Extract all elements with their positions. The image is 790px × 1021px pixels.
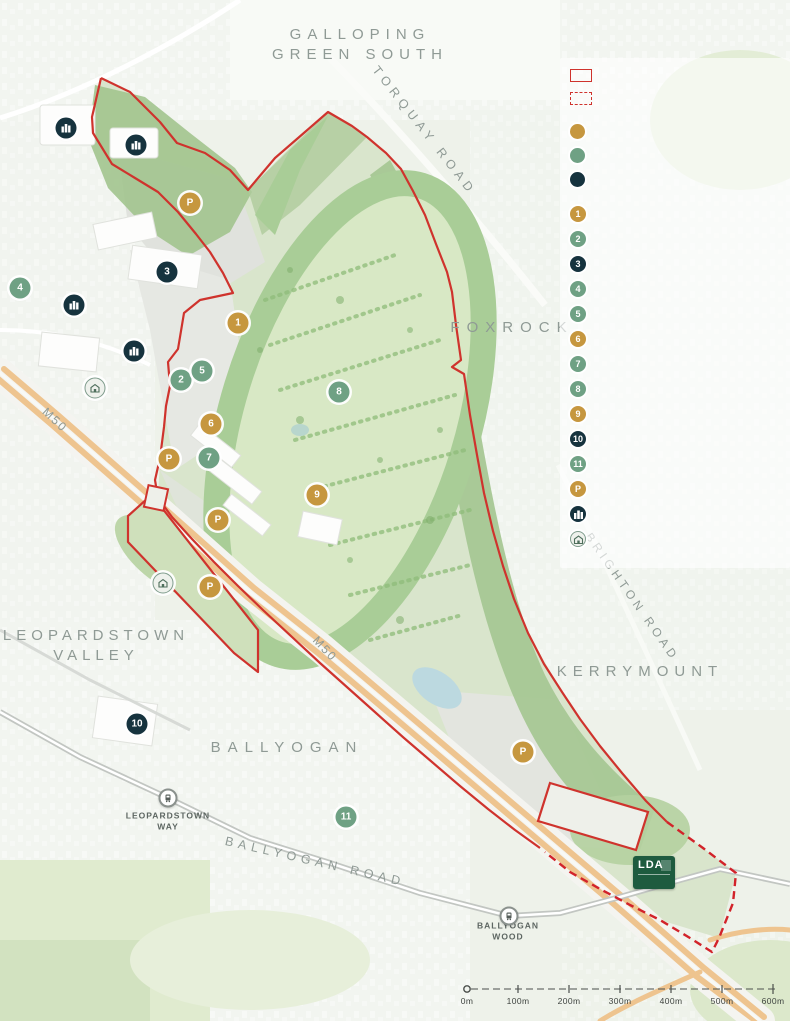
category-color-chip	[570, 148, 585, 163]
legend-item-number: 4	[570, 281, 586, 297]
legend-item-row-11: 11	[570, 456, 782, 472]
school-marker	[153, 573, 174, 594]
scale-bar-line	[462, 982, 780, 996]
legend-item-row-10: 10	[570, 431, 782, 447]
map-marker-9: 9	[307, 485, 328, 506]
legend-item-number: 3	[570, 256, 586, 272]
legend-item-number: 8	[570, 381, 586, 397]
offices-marker	[56, 118, 77, 139]
legend-extras-list: P	[570, 481, 782, 547]
parking-icon: P	[570, 481, 586, 497]
map-label-foxrock: FOXROCK	[450, 318, 573, 338]
lda-logo-subtext	[638, 874, 670, 881]
map-marker-10: 10	[127, 714, 148, 735]
boundary-swatch-dashed	[570, 92, 592, 105]
parking-marker: P	[159, 449, 180, 470]
map-marker-7: 7	[199, 448, 220, 469]
category-color-chip	[570, 124, 585, 139]
legend-extra-row-offices	[570, 506, 782, 522]
scale-label-0m: 0m	[461, 996, 474, 1006]
legend-item-row-9: 9	[570, 406, 782, 422]
parking-marker: P	[180, 193, 201, 214]
map-marker-3: 3	[157, 262, 178, 283]
legend-boundary-row	[570, 68, 782, 82]
legend-boundary-row	[570, 91, 782, 105]
category-color-chip	[570, 172, 585, 187]
legend-categories-list	[570, 124, 782, 187]
legend-item-number: 2	[570, 231, 586, 247]
legend-item-number: 6	[570, 331, 586, 347]
map-marker-5: 5	[192, 361, 213, 382]
legend-boundaries-list	[570, 68, 782, 105]
legend-numbered-list: 1 2 3 4 5 6 7 8 9	[570, 206, 782, 472]
offices-marker	[126, 135, 147, 156]
legend-item-row-8: 8	[570, 381, 782, 397]
map-marker-6: 6	[201, 414, 222, 435]
scale-label-400m: 400m	[660, 996, 683, 1006]
legend-item-row-1: 1	[570, 206, 782, 222]
legend-item-number: 11	[570, 456, 586, 472]
legend-item-number: 5	[570, 306, 586, 322]
legend-item-number: 10	[570, 431, 586, 447]
scale-label-600m: 600m	[762, 996, 785, 1006]
map-label-galloping-green-south: GALLOPING GREEN SOUTH	[272, 25, 448, 66]
map-label-leopardstown-valley: LEOPARDSTOWN VALLEY	[3, 626, 189, 667]
map-label-kerrymount: KERRYMOUNT	[557, 662, 723, 682]
map-canvas: GALLOPING GREEN SOUTHTORQUAY ROADFOXROCK…	[0, 0, 790, 1021]
parking-marker: P	[200, 577, 221, 598]
legend-item-row-7: 7	[570, 356, 782, 372]
legend-item-row-5: 5	[570, 306, 782, 322]
legend-item-row-3: 3	[570, 256, 782, 272]
parking-marker: P	[513, 742, 534, 763]
legend-item-row-2: 2	[570, 231, 782, 247]
map-marker-2: 2	[171, 370, 192, 391]
scale-label-100m: 100m	[507, 996, 530, 1006]
legend-extra-row-parking: P	[570, 481, 782, 497]
offices-marker	[64, 295, 85, 316]
legend-extra-row-school	[570, 531, 782, 547]
tram-stop-marker	[159, 789, 178, 808]
legend-item-number: 7	[570, 356, 586, 372]
map-marker-11: 11	[336, 807, 357, 828]
offices-icon	[570, 506, 586, 522]
scale-label-300m: 300m	[609, 996, 632, 1006]
scale-bar: 0m100m200m300m400m500m600m	[462, 982, 780, 1012]
legend-category-row	[570, 148, 782, 163]
legend-category-row	[570, 124, 782, 139]
scale-label-200m: 200m	[558, 996, 581, 1006]
lda-logo-mark	[661, 860, 671, 871]
tram-stop-marker	[500, 907, 519, 926]
legend-item-row-4: 4	[570, 281, 782, 297]
legend-item-number: 1	[570, 206, 586, 222]
map-label-ballyogan: BALLYOGAN	[211, 738, 364, 758]
legend-category-row	[570, 172, 782, 187]
map-marker-8: 8	[329, 382, 350, 403]
map-label-leopardstown-way: LEOPARDSTOWN WAY	[126, 810, 210, 831]
map-marker-4: 4	[10, 278, 31, 299]
boundary-swatch-solid	[570, 69, 592, 82]
school-marker	[85, 378, 106, 399]
legend-item-row-6: 6	[570, 331, 782, 347]
parking-marker: P	[208, 510, 229, 531]
legend-panel: 1 2 3 4 5 6 7 8 9	[560, 58, 790, 568]
offices-marker	[124, 341, 145, 362]
legend-item-number: 9	[570, 406, 586, 422]
scale-label-500m: 500m	[711, 996, 734, 1006]
lda-logo: LDA	[633, 856, 675, 889]
school-icon	[570, 531, 586, 547]
map-marker-1: 1	[228, 313, 249, 334]
